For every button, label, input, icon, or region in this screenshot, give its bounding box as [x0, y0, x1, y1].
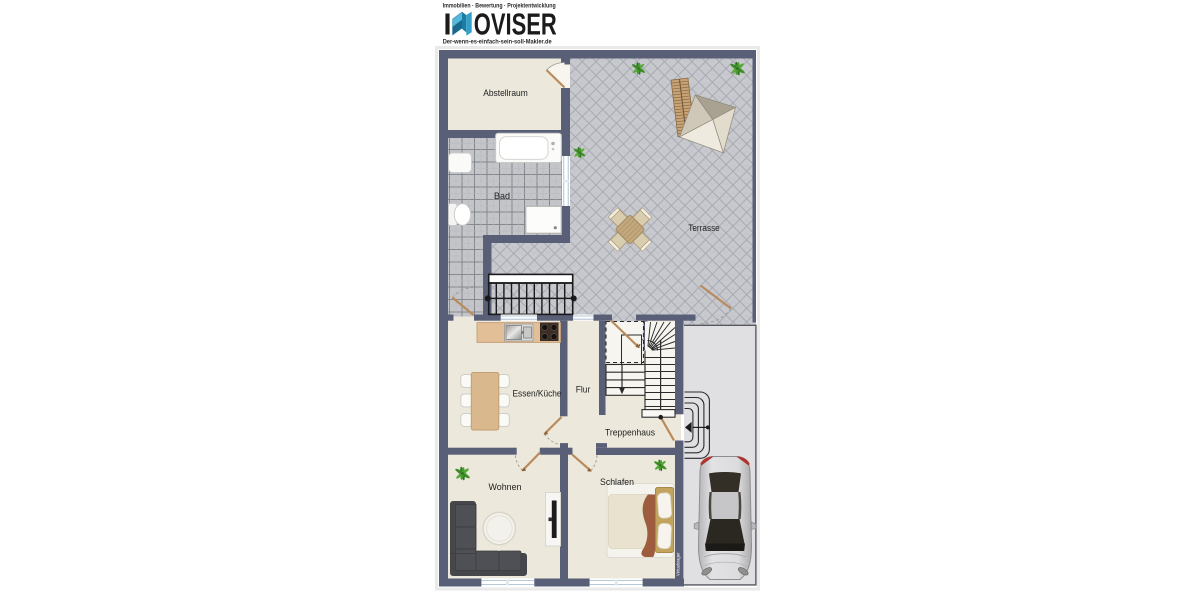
svg-text:Abstellraum: Abstellraum [483, 88, 528, 98]
svg-text:Der-wenn-es-einfach-sein-soll-: Der-wenn-es-einfach-sein-soll-Makler.de [443, 39, 553, 46]
svg-text:OVISER: OVISER [474, 7, 557, 41]
svg-text:Treppenhaus: Treppenhaus [605, 427, 655, 437]
svg-text:Virtualstager: Virtualstager [676, 552, 681, 576]
svg-text:I: I [444, 7, 452, 41]
svg-text:Flur: Flur [576, 385, 591, 395]
svg-text:Terrasse: Terrasse [688, 223, 720, 233]
svg-text:Schlafen: Schlafen [600, 477, 634, 487]
svg-text:Wohnen: Wohnen [489, 482, 522, 492]
svg-text:Bad: Bad [494, 191, 510, 201]
svg-text:Essen/Küche: Essen/Küche [513, 388, 562, 398]
